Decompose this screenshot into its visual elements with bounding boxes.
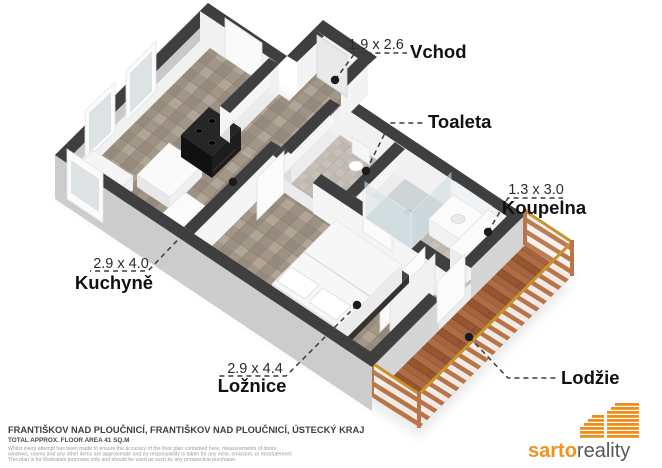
vchod-marker (331, 76, 339, 84)
brand-prefix: sarto (528, 440, 577, 462)
disclaimer-line-3: This plan is for illustrative purposes o… (8, 457, 236, 463)
lodzie-label: Lodžie (561, 367, 620, 388)
loznice-label: Ložnice (218, 375, 287, 396)
vchod-dimensions: 1.9 x 2.6 (348, 37, 404, 53)
address-line: FRANTIŠKOV NAD PLOUČNICÍ, FRANTIŠKOV NAD… (8, 424, 364, 435)
kuchyne-label: Kuchyně (75, 272, 153, 293)
koupelna-marker (484, 228, 492, 236)
koupelna-dimensions: 1.3 x 3.0 (508, 182, 564, 198)
building-icon (580, 403, 639, 438)
floorplan-page: 1.9 x 2.6 Vchod Toaleta 1.3 x 3.0 Koupel… (0, 0, 662, 468)
toaleta-label: Toaleta (428, 111, 492, 132)
area-line: TOTAL APPROX. FLOOR AREA 41 SQ.M (8, 437, 129, 444)
toaleta-marker (362, 167, 370, 175)
footer: FRANTIŠKOV NAD PLOUČNICÍ, FRANTIŠKOV NAD… (8, 424, 364, 463)
kuchyne-marker (229, 178, 237, 186)
brand-wordmark: sartoreality (528, 440, 630, 462)
floorplan-canvas: 1.9 x 2.6 Vchod Toaleta 1.3 x 3.0 Koupel… (0, 0, 662, 468)
lodzie-marker (465, 333, 473, 341)
vchod-label: Vchod (410, 41, 467, 62)
loznice-marker (353, 301, 361, 309)
koupelna-label: Koupelna (502, 197, 587, 218)
brand-suffix: reality (577, 440, 630, 462)
kuchyne-dimensions: 2.9 x 4.0 (93, 256, 149, 272)
brand-logo: sartoreality (528, 403, 639, 462)
